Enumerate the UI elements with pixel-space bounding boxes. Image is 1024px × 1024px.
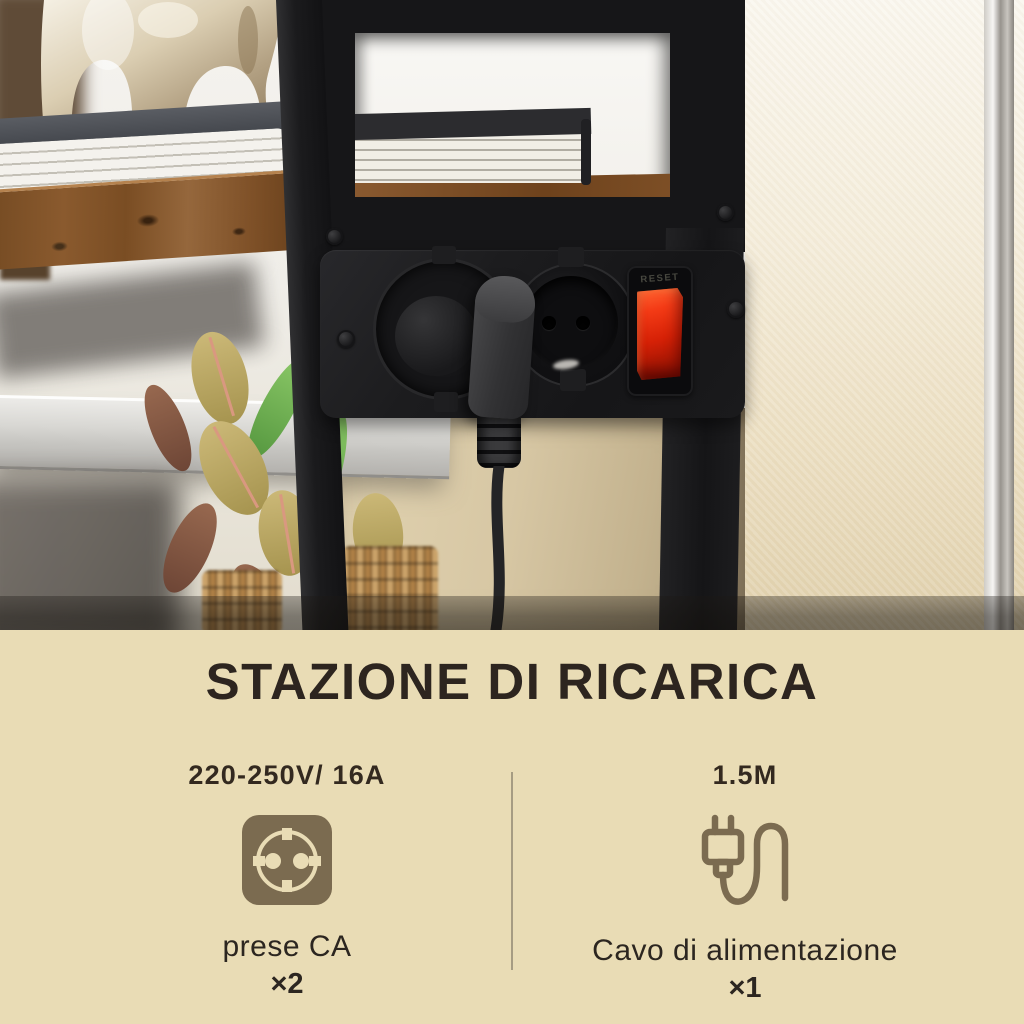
screw-icon <box>717 204 734 221</box>
book-cover-edge <box>581 119 591 185</box>
spec-cable-length: 1.5M <box>713 760 778 794</box>
cable-count-value: ×1 <box>728 972 761 1005</box>
spec-voltage: 220-250V/ 16A <box>188 760 385 794</box>
chrome-wall-trim <box>984 0 1014 630</box>
power-plug <box>395 296 477 376</box>
product-image: RESET STAZIONE DI RICARICA 220-250V/ 16A… <box>0 0 1024 1024</box>
textured-wall <box>745 0 1024 630</box>
shelf-frame-top <box>318 0 745 252</box>
screw-icon <box>727 300 745 318</box>
socket-hole <box>576 316 590 330</box>
schuko-outlet-icon <box>241 814 333 906</box>
socket-clip <box>432 246 456 264</box>
photo-section: RESET <box>0 0 1024 630</box>
spec-column-cable: 1.5M Cavo di alimentazione ×1 <box>545 760 945 1005</box>
page-title: STAZIONE DI RICARICA <box>0 652 1024 711</box>
power-plug-handle <box>467 274 537 420</box>
photo-bottom-gradient <box>0 596 1024 630</box>
info-panel: STAZIONE DI RICARICA 220-250V/ 16A prese… <box>0 630 1024 1024</box>
cable-label: Cavo di alimentazione <box>592 934 898 968</box>
spec-column-outlets: 220-250V/ 16A prese CA ×2 <box>107 760 467 1001</box>
frame-opening <box>355 33 670 197</box>
outlet-count-label: prese CA <box>222 930 351 964</box>
socket-clip <box>558 247 584 267</box>
reset-switch-rocker <box>637 288 683 380</box>
column-divider <box>511 772 513 970</box>
screw-icon <box>337 330 355 348</box>
power-cord-icon <box>693 814 797 910</box>
socket-recess <box>524 276 618 370</box>
screw-icon <box>326 228 343 245</box>
socket-hole <box>542 316 556 330</box>
socket-clip <box>560 369 586 391</box>
socket-clip <box>434 392 458 412</box>
outlet-count-value: ×2 <box>270 968 303 1001</box>
